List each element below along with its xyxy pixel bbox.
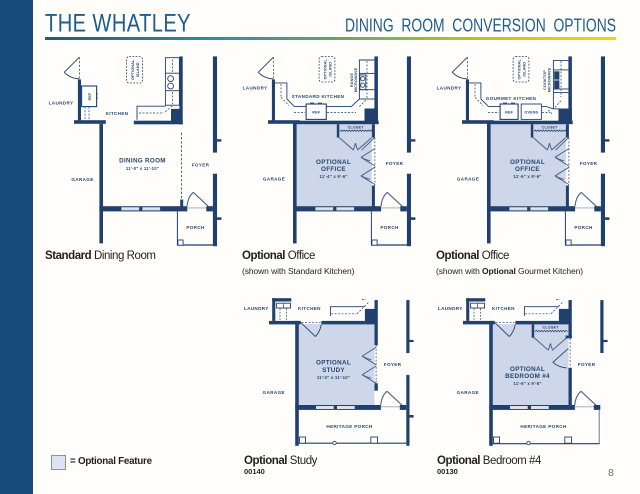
svg-text:ISLAND: ISLAND [329, 62, 333, 77]
svg-text:PORCH: PORCH [574, 225, 593, 230]
svg-text:PORCH: PORCH [380, 225, 399, 230]
svg-text:OPTIONAL: OPTIONAL [316, 360, 351, 367]
svg-text:LAUNDRY: LAUNDRY [49, 101, 74, 106]
svg-text:LAUNDRY: LAUNDRY [437, 85, 462, 90]
svg-text:REF: REF [505, 111, 513, 115]
svg-text:LAUNDRY: LAUNDRY [244, 306, 269, 311]
svg-text:OPTIONAL: OPTIONAL [316, 159, 351, 166]
svg-text:KITCHEN: KITCHEN [298, 306, 321, 311]
svg-text:CLOSET: CLOSET [543, 326, 560, 330]
svg-text:OPTIONAL: OPTIONAL [324, 59, 328, 80]
svg-text:OPTIONAL: OPTIONAL [131, 59, 135, 80]
svg-text:STANDARD KITCHEN: STANDARD KITCHEN [292, 94, 345, 99]
svg-text:OPTIONAL: OPTIONAL [518, 59, 522, 80]
svg-text:HERITAGE PORCH: HERITAGE PORCH [326, 424, 372, 429]
svg-text:FOYER: FOYER [580, 161, 598, 166]
svg-text:OFFICE: OFFICE [321, 166, 346, 173]
svg-text:OFFICE: OFFICE [515, 166, 540, 173]
svg-text:FOYER: FOYER [192, 162, 210, 167]
svg-text:GARAGE: GARAGE [263, 177, 285, 182]
svg-text:GARAGE: GARAGE [457, 390, 479, 395]
svg-text:KITCHEN: KITCHEN [106, 111, 129, 116]
svg-text:MICROWAVE: MICROWAVE [354, 67, 358, 92]
svg-text:ISLAND: ISLAND [136, 62, 140, 77]
svg-text:CLOSET: CLOSET [348, 125, 365, 129]
svg-text:11'-6" x 9'-6": 11'-6" x 9'-6" [513, 174, 541, 179]
svg-text:REF: REF [312, 111, 320, 115]
svg-text:GARAGE: GARAGE [457, 177, 479, 182]
svg-text:BEDROOM #4: BEDROOM #4 [505, 373, 550, 380]
svg-text:DINING ROOM: DINING ROOM [119, 158, 166, 165]
svg-text:CLOSET: CLOSET [542, 125, 559, 129]
svg-text:GARAGE: GARAGE [71, 177, 93, 182]
svg-text:ISLAND: ISLAND [523, 62, 527, 77]
svg-text:FOYER: FOYER [384, 362, 402, 367]
svg-text:FOYER: FOYER [578, 362, 596, 367]
svg-text:GOURMET KITCHEN: GOURMET KITCHEN [486, 96, 537, 101]
svg-text:OPTIONAL: OPTIONAL [510, 366, 545, 373]
svg-text:LAUNDRY: LAUNDRY [438, 306, 463, 311]
svg-text:REF: REF [88, 92, 92, 100]
svg-text:11'-6" x 9'-6": 11'-6" x 9'-6" [513, 381, 541, 386]
svg-text:KITCHEN: KITCHEN [492, 306, 515, 311]
svg-text:FOYER: FOYER [386, 161, 404, 166]
svg-text:STUDY: STUDY [322, 367, 345, 374]
svg-text:GARAGE: GARAGE [263, 390, 285, 395]
svg-text:11'-0" x 11'-10": 11'-0" x 11'-10" [126, 166, 159, 171]
svg-text:HERITAGE PORCH: HERITAGE PORCH [520, 424, 566, 429]
svg-text:PORCH: PORCH [186, 225, 205, 230]
svg-text:OPTIONAL: OPTIONAL [510, 159, 545, 166]
svg-text:OVENS: OVENS [524, 111, 538, 115]
svg-text:11'-4" x 9'-6": 11'-4" x 9'-6" [319, 174, 347, 179]
svg-text:LAUNDRY: LAUNDRY [243, 85, 268, 90]
svg-text:11'-0" x 11'-10": 11'-0" x 11'-10" [317, 375, 350, 380]
svg-text:MICROWAVE: MICROWAVE [547, 67, 551, 92]
